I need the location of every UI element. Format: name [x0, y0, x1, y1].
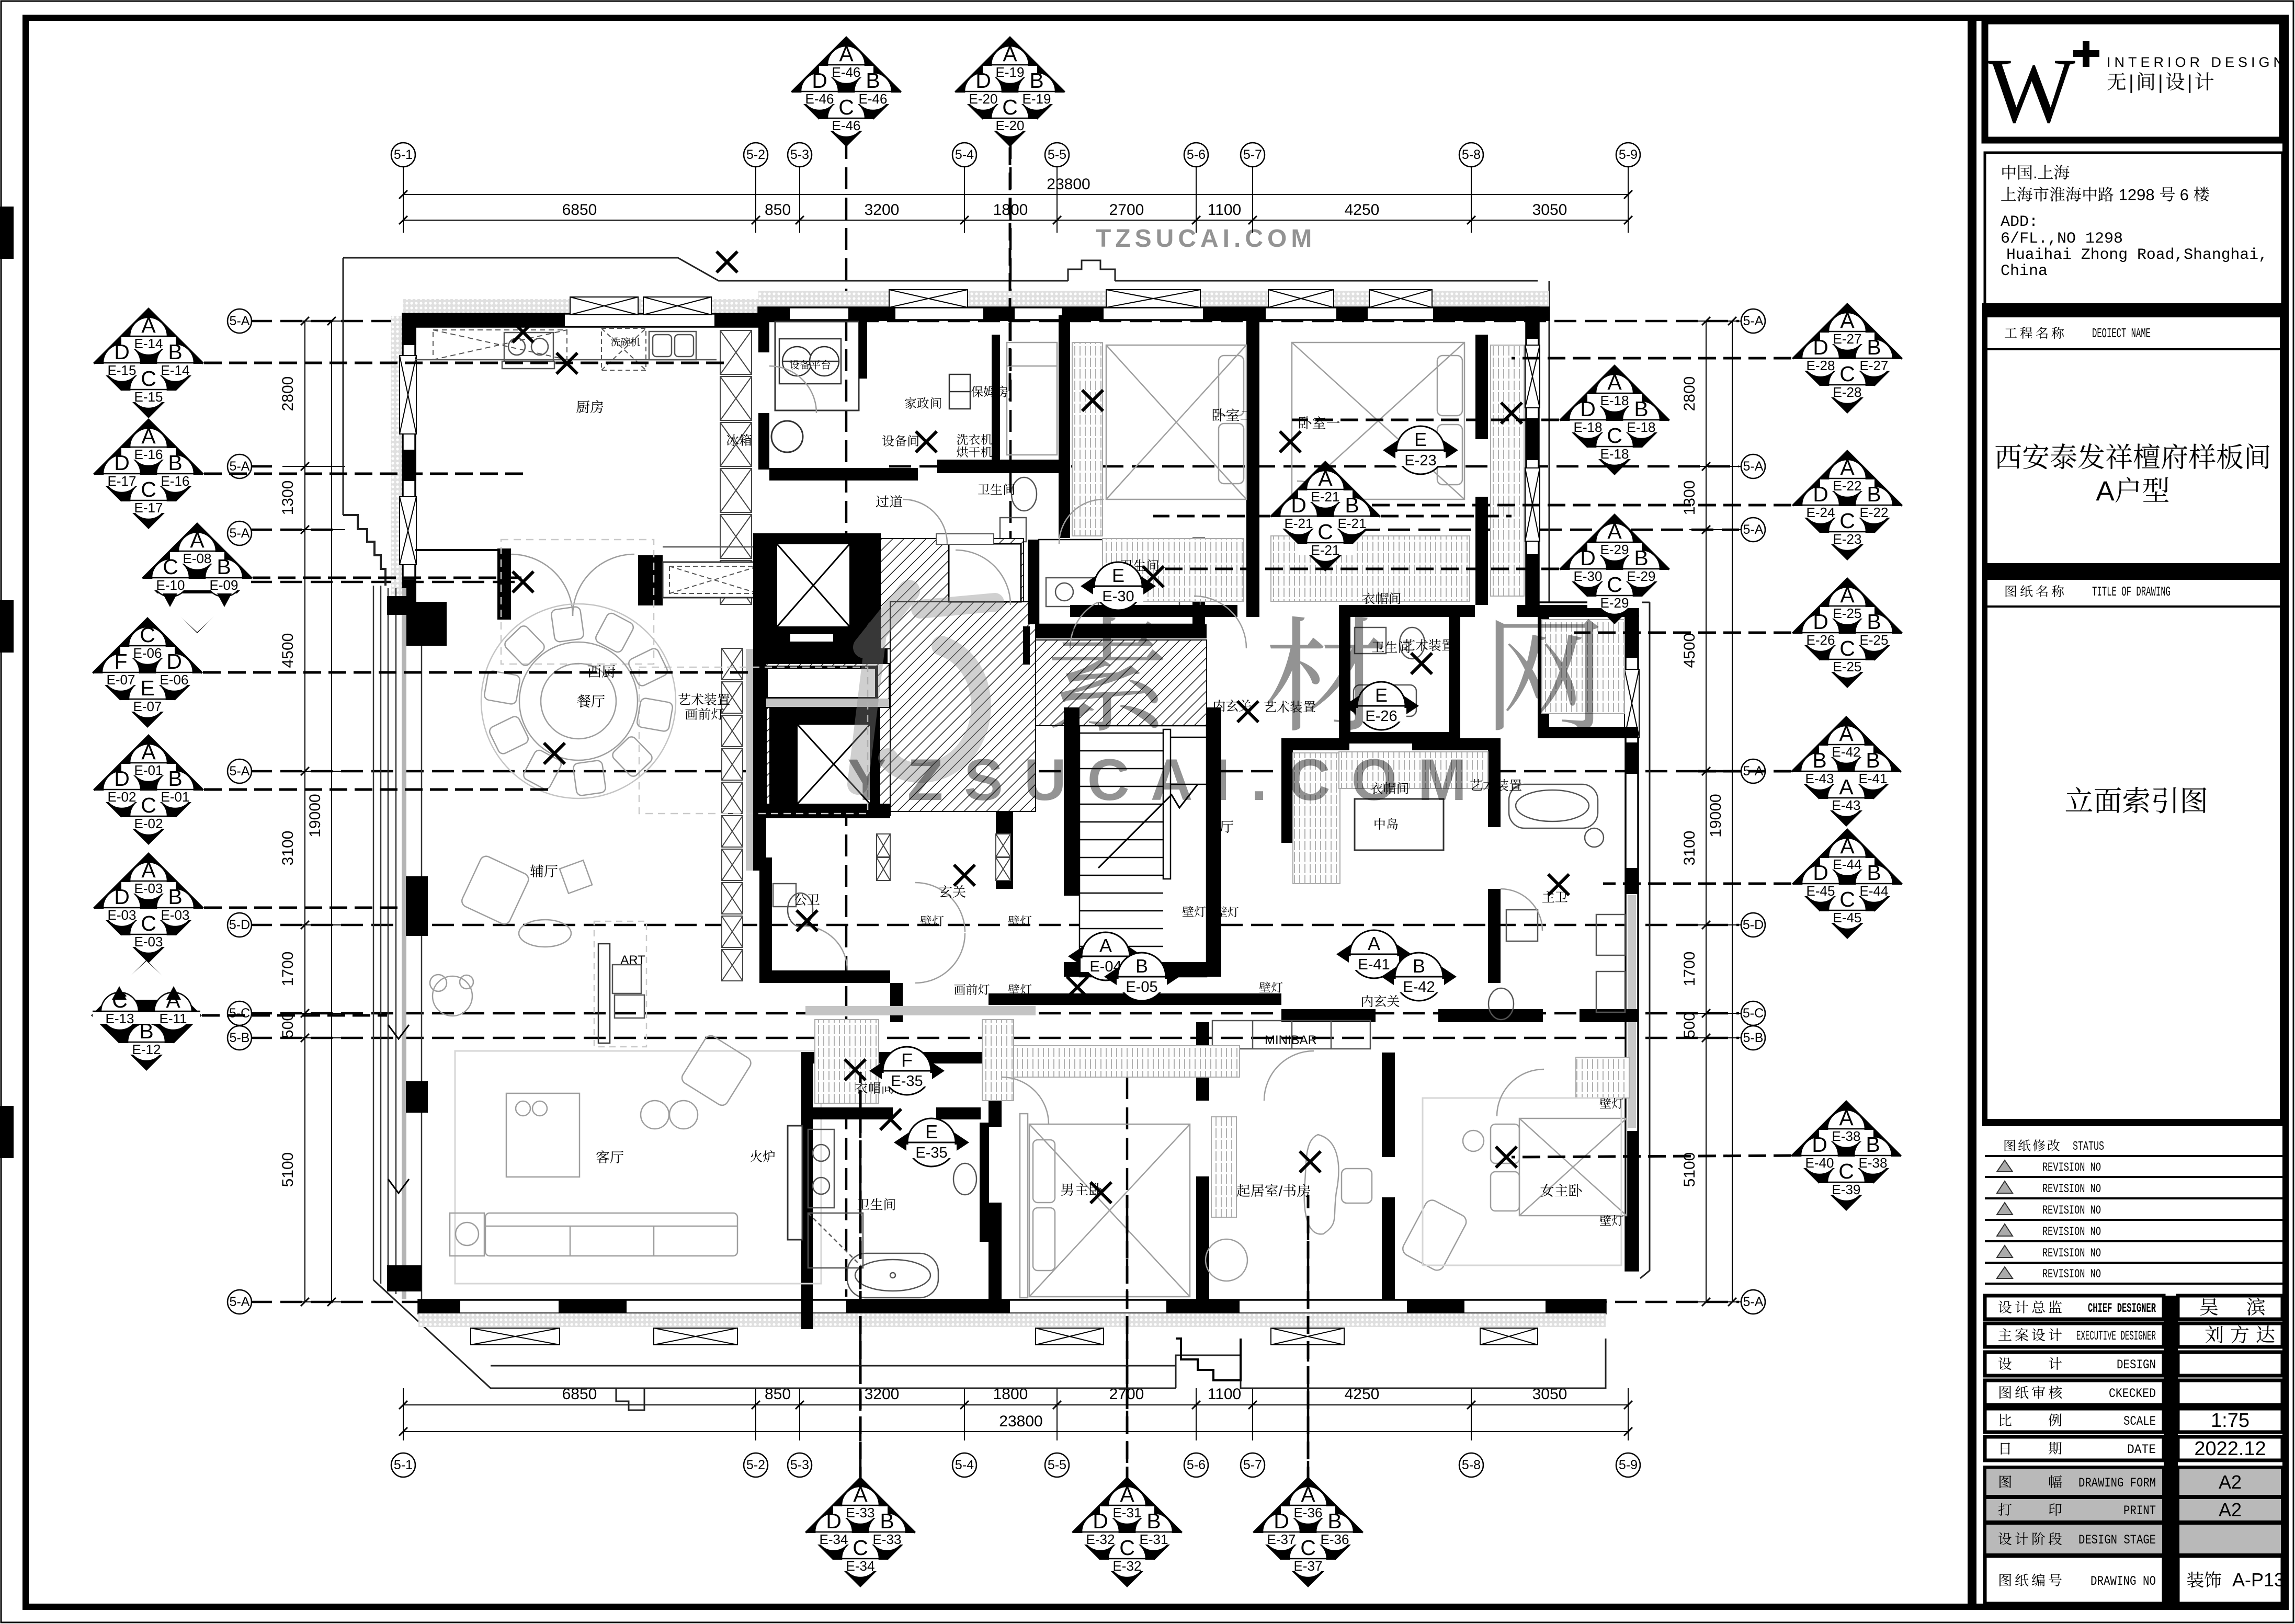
- svg-text:REVISION NO: REVISION NO: [2042, 1161, 2101, 1174]
- svg-text:号: 号: [2048, 1569, 2062, 1589]
- svg-text:D: D: [1813, 861, 1828, 885]
- svg-text:设: 设: [1998, 1528, 2012, 1548]
- svg-text:厨房: 厨房: [576, 396, 604, 416]
- svg-text:卧室一: 卧室一: [1298, 412, 1340, 432]
- svg-text:REVISION NO: REVISION NO: [2042, 1246, 2101, 1260]
- svg-text:E-09: E-09: [210, 577, 238, 593]
- svg-text:C: C: [838, 95, 854, 119]
- svg-text:E-42: E-42: [1832, 744, 1861, 760]
- svg-text:E-44: E-44: [1860, 883, 1889, 899]
- svg-text:C: C: [853, 1536, 868, 1560]
- svg-text:E-40: E-40: [1805, 1155, 1834, 1171]
- svg-text:D: D: [114, 885, 130, 909]
- svg-text:客厅: 客厅: [596, 1146, 624, 1166]
- svg-text:5-A: 5-A: [1743, 522, 1764, 537]
- svg-text:D: D: [114, 340, 130, 364]
- svg-text:设备间: 设备间: [882, 431, 919, 449]
- svg-text:5-A: 5-A: [230, 459, 250, 474]
- svg-text:5-A: 5-A: [1743, 459, 1764, 474]
- svg-text:西厨: 西厨: [587, 660, 616, 681]
- svg-text:刘: 刘: [2205, 1319, 2224, 1347]
- svg-text:段: 段: [2048, 1528, 2062, 1548]
- svg-text:5-3: 5-3: [790, 147, 809, 162]
- svg-text:B: B: [1867, 482, 1881, 506]
- svg-text:E-24: E-24: [1807, 505, 1835, 520]
- svg-text:E-22: E-22: [1833, 478, 1862, 494]
- svg-text:B: B: [1634, 397, 1648, 421]
- svg-text:E-21: E-21: [1285, 516, 1313, 531]
- svg-text:印: 印: [2048, 1499, 2062, 1519]
- svg-text:E-23: E-23: [1404, 452, 1436, 469]
- svg-text:B: B: [1866, 748, 1880, 772]
- svg-text:5-B: 5-B: [230, 1031, 250, 1045]
- svg-text:辅厅: 辅厅: [530, 860, 558, 880]
- svg-text:B: B: [168, 340, 182, 364]
- svg-text:A: A: [141, 424, 156, 448]
- svg-text:4250: 4250: [1345, 201, 1380, 219]
- svg-text:A: A: [1840, 583, 1855, 607]
- svg-text:壁灯: 壁灯: [920, 912, 944, 929]
- svg-text:D: D: [1274, 1509, 1289, 1533]
- svg-text:E-46: E-46: [832, 118, 861, 133]
- svg-text:C: C: [141, 477, 156, 501]
- svg-text:1700: 1700: [279, 952, 297, 987]
- svg-text:A2: A2: [2219, 1499, 2242, 1520]
- svg-text:E-45: E-45: [1807, 883, 1835, 899]
- svg-text:DATE: DATE: [2127, 1442, 2156, 1457]
- svg-text:保姆房: 保姆房: [971, 382, 1008, 400]
- svg-text:STATUS: STATUS: [2073, 1140, 2104, 1154]
- svg-text:卫生间: 卫生间: [978, 479, 1015, 498]
- svg-text:DESIGN STAGE: DESIGN STAGE: [2078, 1532, 2156, 1548]
- svg-text:E-37: E-37: [1294, 1558, 1323, 1574]
- svg-text:5-A: 5-A: [230, 314, 250, 328]
- svg-text:E-35: E-35: [891, 1073, 923, 1090]
- svg-text:5-4: 5-4: [955, 147, 974, 162]
- svg-text:E-15: E-15: [108, 362, 137, 378]
- svg-text:E-38: E-38: [1859, 1155, 1888, 1171]
- svg-text:D: D: [1812, 1133, 1827, 1157]
- svg-text:E-36: E-36: [1321, 1531, 1349, 1547]
- svg-text:1700: 1700: [1681, 952, 1698, 987]
- svg-text:C: C: [1607, 573, 1622, 597]
- svg-text:D: D: [1580, 546, 1596, 570]
- svg-text:B: B: [217, 555, 231, 579]
- svg-text:E-03: E-03: [134, 934, 163, 950]
- svg-text:画前灯: 画前灯: [954, 980, 990, 998]
- svg-text:A: A: [1839, 775, 1854, 799]
- svg-text:E-18: E-18: [1600, 393, 1629, 408]
- svg-text:E-25: E-25: [1833, 659, 1862, 674]
- svg-text:19000: 19000: [306, 794, 324, 837]
- svg-text:B: B: [139, 1019, 153, 1043]
- svg-text:C: C: [112, 988, 128, 1012]
- svg-text:计: 计: [2048, 1353, 2062, 1373]
- svg-text:D: D: [1580, 397, 1596, 421]
- svg-text:MINIBAR: MINIBAR: [1265, 1033, 1317, 1047]
- svg-text:B: B: [1867, 335, 1881, 359]
- svg-text:壁灯: 壁灯: [1259, 978, 1283, 996]
- svg-text:5-D: 5-D: [1743, 918, 1764, 932]
- svg-text:B: B: [1867, 610, 1881, 634]
- svg-text:2022.12: 2022.12: [2194, 1438, 2266, 1460]
- svg-text:5-5: 5-5: [1048, 1458, 1066, 1472]
- svg-text:E-34: E-34: [846, 1558, 875, 1574]
- svg-text:D: D: [166, 649, 182, 673]
- svg-text:B: B: [880, 1509, 894, 1533]
- svg-text:装饰: 装饰: [2186, 1566, 2222, 1592]
- svg-text:A户型: A户型: [2096, 469, 2169, 509]
- svg-text:设: 设: [1998, 1353, 2012, 1373]
- svg-text:C: C: [1300, 1536, 1316, 1560]
- svg-text:4500: 4500: [1681, 633, 1698, 668]
- svg-text:C: C: [1119, 1536, 1135, 1560]
- svg-text:上海市淮海中路 1298 号 6 楼: 上海市淮海中路 1298 号 6 楼: [2001, 181, 2210, 205]
- svg-text:监: 监: [2048, 1296, 2062, 1317]
- svg-text:A: A: [190, 528, 204, 552]
- svg-text:C: C: [1839, 636, 1855, 660]
- svg-text:餐厅: 餐厅: [577, 690, 605, 711]
- svg-text:DEOIECT NAME: DEOIECT NAME: [2092, 326, 2151, 341]
- svg-text:壁灯: 壁灯: [1599, 1211, 1623, 1229]
- svg-text:6/FL.,NO 1298: 6/FL.,NO 1298: [2001, 230, 2123, 248]
- svg-text:例: 例: [2048, 1409, 2062, 1429]
- svg-text:C: C: [140, 623, 155, 647]
- svg-text:ADD:: ADD:: [2001, 213, 2038, 231]
- svg-text:E-08: E-08: [183, 551, 212, 566]
- svg-text:火炉: 火炉: [749, 1147, 776, 1165]
- svg-text:3050: 3050: [1532, 201, 1567, 219]
- svg-text:内玄关: 内玄关: [1360, 991, 1400, 1010]
- svg-text:女主卧: 女主卧: [1540, 1180, 1583, 1200]
- svg-text:B: B: [866, 68, 880, 93]
- svg-text:A: A: [1003, 42, 1017, 66]
- svg-text:A: A: [1840, 455, 1855, 479]
- svg-text:E-11: E-11: [160, 1011, 187, 1026]
- svg-text:A: A: [1318, 466, 1333, 490]
- svg-text:E-42: E-42: [1403, 979, 1435, 996]
- svg-text:中岛: 中岛: [1373, 814, 1399, 832]
- svg-text:E-21: E-21: [1311, 542, 1340, 558]
- svg-text:改: 改: [2047, 1136, 2060, 1154]
- svg-text:5-7: 5-7: [1243, 1458, 1262, 1472]
- svg-text:E-45: E-45: [1833, 910, 1862, 925]
- svg-text:A: A: [839, 42, 854, 66]
- svg-text:图: 图: [1998, 1569, 2012, 1589]
- svg-text:A: A: [166, 988, 180, 1012]
- svg-text:主: 主: [1998, 1324, 2012, 1344]
- svg-text:3200: 3200: [865, 201, 900, 219]
- svg-text:洗碗机: 洗碗机: [610, 335, 640, 349]
- svg-text:壁灯: 壁灯: [1216, 904, 1239, 920]
- svg-text:5-A: 5-A: [1743, 314, 1764, 328]
- svg-text:起居室/书房: 起居室/书房: [1236, 1180, 1311, 1200]
- svg-text:纸: 纸: [2015, 1381, 2029, 1402]
- svg-text:B: B: [1327, 1509, 1342, 1533]
- svg-text:REVISION NO: REVISION NO: [2042, 1225, 2101, 1239]
- svg-text:5-2: 5-2: [746, 1458, 765, 1472]
- svg-text:总: 总: [2031, 1296, 2046, 1317]
- svg-text:A: A: [1840, 834, 1855, 858]
- svg-text:E-43: E-43: [1832, 797, 1861, 813]
- svg-text:D: D: [975, 68, 991, 93]
- svg-text:B: B: [1029, 68, 1043, 93]
- svg-text:B: B: [1634, 546, 1648, 570]
- svg-text:无|间|设|计: 无|间|设|计: [2107, 66, 2217, 95]
- svg-text:E-19: E-19: [1022, 91, 1051, 107]
- svg-text:A-P13: A-P13: [2232, 1569, 2285, 1591]
- svg-text:方: 方: [2230, 1319, 2249, 1347]
- svg-text:1100: 1100: [1208, 1386, 1242, 1403]
- svg-text:E-25: E-25: [1860, 632, 1889, 648]
- svg-text:ART: ART: [620, 953, 645, 967]
- svg-text:6850: 6850: [562, 201, 597, 219]
- svg-text:B: B: [168, 885, 182, 909]
- svg-text:E-32: E-32: [1086, 1531, 1115, 1547]
- svg-text:冰箱: 冰箱: [726, 430, 752, 449]
- svg-text:E-14: E-14: [134, 336, 163, 351]
- svg-text:A: A: [1840, 308, 1855, 333]
- svg-text:SCALE: SCALE: [2123, 1414, 2156, 1429]
- svg-text:E-27: E-27: [1860, 358, 1889, 373]
- svg-text:E-21: E-21: [1311, 489, 1340, 505]
- svg-text:E-35: E-35: [915, 1145, 947, 1161]
- svg-text:E-02: E-02: [108, 789, 137, 805]
- svg-text:E-31: E-31: [1140, 1531, 1168, 1547]
- svg-text:计: 计: [2048, 1324, 2062, 1344]
- svg-text:壁灯: 壁灯: [1599, 1094, 1623, 1112]
- svg-text:阶: 阶: [2031, 1528, 2046, 1548]
- svg-text:A: A: [141, 740, 156, 764]
- svg-text:壁灯: 壁灯: [1182, 902, 1206, 920]
- svg-text:中国.上海: 中国.上海: [2001, 159, 2070, 183]
- svg-text:A: A: [1368, 933, 1380, 954]
- svg-text:850: 850: [765, 201, 791, 219]
- svg-text:E-19: E-19: [996, 64, 1025, 80]
- svg-text:E-07: E-07: [107, 672, 135, 688]
- svg-text:烘干机: 烘干机: [957, 443, 993, 460]
- svg-text:A: A: [141, 313, 156, 337]
- svg-text:A: A: [1839, 722, 1854, 746]
- svg-text:E-15: E-15: [134, 389, 163, 405]
- svg-text:DESIGN: DESIGN: [2117, 1357, 2156, 1373]
- svg-text:REVISION NO: REVISION NO: [2042, 1204, 2101, 1217]
- svg-text:C: C: [1607, 424, 1622, 448]
- svg-text:E-41: E-41: [1358, 956, 1390, 973]
- svg-text:E-22: E-22: [1860, 505, 1889, 520]
- svg-text:23800: 23800: [999, 1413, 1042, 1430]
- svg-text:E-16: E-16: [134, 447, 163, 462]
- svg-text:E-21: E-21: [1338, 516, 1367, 531]
- svg-text:E-01: E-01: [134, 762, 163, 778]
- svg-text:设备平台: 设备平台: [789, 357, 831, 372]
- svg-text:D: D: [1093, 1509, 1108, 1533]
- svg-text:PRINT: PRINT: [2123, 1503, 2156, 1518]
- svg-text:E-18: E-18: [1627, 419, 1656, 435]
- svg-text:E-18: E-18: [1600, 446, 1629, 462]
- svg-text:E-33: E-33: [873, 1531, 902, 1547]
- svg-text:E-46: E-46: [859, 91, 888, 107]
- svg-text:纸: 纸: [2015, 1569, 2029, 1589]
- svg-text:TITLE OF DRAWING: TITLE OF DRAWING: [2092, 584, 2171, 600]
- svg-text:E-01: E-01: [161, 789, 190, 805]
- svg-text:B: B: [1867, 861, 1881, 885]
- svg-text:图: 图: [1998, 1381, 2012, 1402]
- svg-text:图: 图: [2004, 581, 2017, 600]
- svg-text:E-25: E-25: [1833, 605, 1862, 621]
- svg-text:计: 计: [2015, 1296, 2029, 1317]
- svg-text:A: A: [1607, 370, 1622, 394]
- svg-text:2700: 2700: [1109, 201, 1144, 219]
- svg-text:C: C: [1838, 1159, 1854, 1183]
- svg-text:A: A: [1607, 519, 1622, 543]
- svg-text:审: 审: [2031, 1381, 2046, 1402]
- svg-text:5100: 5100: [279, 1152, 297, 1187]
- svg-text:E-20: E-20: [996, 118, 1025, 133]
- svg-text:TZSUCAI.COM: TZSUCAI.COM: [1096, 225, 1316, 253]
- svg-text:5-A: 5-A: [230, 526, 250, 541]
- svg-text:B: B: [1866, 1133, 1880, 1157]
- svg-text:E-14: E-14: [161, 362, 190, 378]
- svg-text:19000: 19000: [1707, 794, 1724, 837]
- svg-text:比: 比: [1998, 1409, 2012, 1429]
- svg-text:设: 设: [1998, 1296, 2012, 1317]
- svg-text:公卫: 公卫: [794, 890, 820, 909]
- svg-text:E-03: E-03: [108, 907, 137, 923]
- svg-text:E-05: E-05: [1126, 979, 1157, 996]
- svg-text:E-41: E-41: [1859, 771, 1888, 786]
- svg-text:E-38: E-38: [1832, 1128, 1861, 1144]
- svg-text:5-9: 5-9: [1619, 147, 1638, 162]
- svg-text:E-31: E-31: [1113, 1505, 1142, 1520]
- svg-text:壁灯: 壁灯: [1008, 912, 1032, 929]
- svg-text:23800: 23800: [1047, 176, 1090, 193]
- svg-text:Huaihai Zhong Road,Shanghai,: Huaihai Zhong Road,Shanghai,: [2006, 246, 2268, 264]
- svg-text:E: E: [925, 1121, 938, 1142]
- svg-text:China: China: [2001, 262, 2048, 280]
- svg-text:E-34: E-34: [820, 1531, 848, 1547]
- svg-text:REVISION NO: REVISION NO: [2042, 1182, 2101, 1196]
- svg-text:REVISION NO: REVISION NO: [2042, 1267, 2101, 1281]
- svg-text:5-6: 5-6: [1187, 147, 1206, 162]
- svg-text:5-C: 5-C: [229, 1006, 250, 1021]
- svg-text:DRAWING NO: DRAWING NO: [2091, 1574, 2156, 1589]
- svg-text:B: B: [1135, 955, 1148, 977]
- svg-text:B: B: [1146, 1509, 1161, 1533]
- svg-text:5-A: 5-A: [1743, 1295, 1764, 1309]
- svg-text:名: 名: [2036, 581, 2049, 600]
- svg-text:5-1: 5-1: [394, 1458, 413, 1472]
- svg-text:期: 期: [2048, 1437, 2062, 1458]
- svg-text:A: A: [1099, 935, 1112, 956]
- svg-text:吴: 吴: [2199, 1291, 2219, 1320]
- svg-text:E-28: E-28: [1807, 358, 1835, 373]
- svg-text:2800: 2800: [1681, 376, 1698, 411]
- svg-text:C: C: [1839, 362, 1855, 386]
- svg-text:5-A: 5-A: [230, 1295, 250, 1309]
- svg-text:E-32: E-32: [1113, 1558, 1142, 1574]
- svg-text:DRAWING FORM: DRAWING FORM: [2078, 1476, 2156, 1491]
- svg-text:1300: 1300: [1681, 481, 1698, 516]
- svg-text:E-36: E-36: [1294, 1505, 1323, 1520]
- svg-text:打: 打: [1998, 1499, 2012, 1519]
- svg-text:E-17: E-17: [108, 473, 137, 489]
- svg-text:C: C: [141, 793, 156, 817]
- svg-text:幅: 幅: [2048, 1471, 2062, 1491]
- svg-text:C: C: [1839, 509, 1855, 533]
- svg-text:B: B: [1812, 748, 1826, 772]
- svg-text:计: 计: [2015, 1528, 2029, 1548]
- svg-text:E-17: E-17: [134, 500, 163, 516]
- svg-text:称: 称: [2051, 581, 2064, 600]
- svg-text:案: 案: [2015, 1324, 2029, 1344]
- svg-text:1100: 1100: [1208, 201, 1242, 219]
- svg-text:1300: 1300: [279, 481, 297, 516]
- svg-text:E-46: E-46: [805, 91, 834, 107]
- svg-text:内玄关: 内玄关: [1212, 696, 1252, 715]
- svg-text:4500: 4500: [279, 633, 297, 668]
- svg-text:E: E: [140, 676, 154, 700]
- svg-text:图: 图: [1998, 1471, 2012, 1491]
- svg-text:日: 日: [1998, 1437, 2012, 1458]
- svg-text:500: 500: [1681, 1012, 1698, 1038]
- svg-text:5-3: 5-3: [790, 1458, 809, 1472]
- svg-text:5-D: 5-D: [229, 918, 250, 932]
- svg-text:B: B: [1413, 955, 1425, 977]
- svg-text:纸: 纸: [2020, 581, 2033, 600]
- svg-text:E-10: E-10: [156, 577, 185, 593]
- svg-text:图: 图: [2003, 1136, 2016, 1154]
- svg-text:A: A: [1301, 1482, 1315, 1506]
- svg-text:E-23: E-23: [1833, 531, 1862, 547]
- svg-text:D: D: [1813, 610, 1828, 634]
- svg-text:3100: 3100: [1681, 831, 1698, 866]
- svg-text:D: D: [812, 68, 827, 93]
- svg-text:B: B: [1345, 493, 1359, 517]
- svg-text:D: D: [1291, 493, 1306, 517]
- svg-text:E-16: E-16: [161, 473, 190, 489]
- svg-text:5-8: 5-8: [1462, 1458, 1481, 1472]
- svg-text:E-33: E-33: [846, 1505, 875, 1520]
- svg-text:程: 程: [2020, 323, 2033, 342]
- svg-text:E-44: E-44: [1833, 856, 1862, 872]
- svg-text:名: 名: [2036, 323, 2049, 342]
- svg-text:家政间: 家政间: [904, 393, 942, 411]
- svg-text:核: 核: [2048, 1381, 2062, 1402]
- svg-text:A: A: [853, 1482, 868, 1506]
- svg-text:5-4: 5-4: [955, 1458, 974, 1472]
- svg-text:素: 素: [1045, 578, 1169, 757]
- svg-text:过厅: 过厅: [1206, 816, 1234, 836]
- svg-text:E-07: E-07: [133, 699, 162, 714]
- svg-text:A: A: [1839, 1106, 1854, 1130]
- svg-text:B: B: [168, 451, 182, 475]
- svg-text:纸: 纸: [2018, 1136, 2031, 1154]
- svg-text:D: D: [114, 767, 130, 791]
- svg-text:CHIEF DESIGNER: CHIEF DESIGNER: [2088, 1301, 2156, 1316]
- svg-text:5-8: 5-8: [1462, 147, 1481, 162]
- svg-text:卫生间: 卫生间: [857, 1195, 896, 1214]
- svg-text:E-27: E-27: [1833, 331, 1862, 347]
- svg-text:达: 达: [2256, 1319, 2275, 1347]
- svg-text:网: 网: [1482, 578, 1607, 757]
- svg-text:F: F: [114, 649, 127, 673]
- svg-text:E-18: E-18: [1574, 419, 1603, 435]
- svg-text:5-5: 5-5: [1048, 147, 1066, 162]
- svg-text:C: C: [141, 911, 156, 935]
- svg-text:编: 编: [2031, 1569, 2046, 1589]
- svg-text:C: C: [1839, 887, 1855, 911]
